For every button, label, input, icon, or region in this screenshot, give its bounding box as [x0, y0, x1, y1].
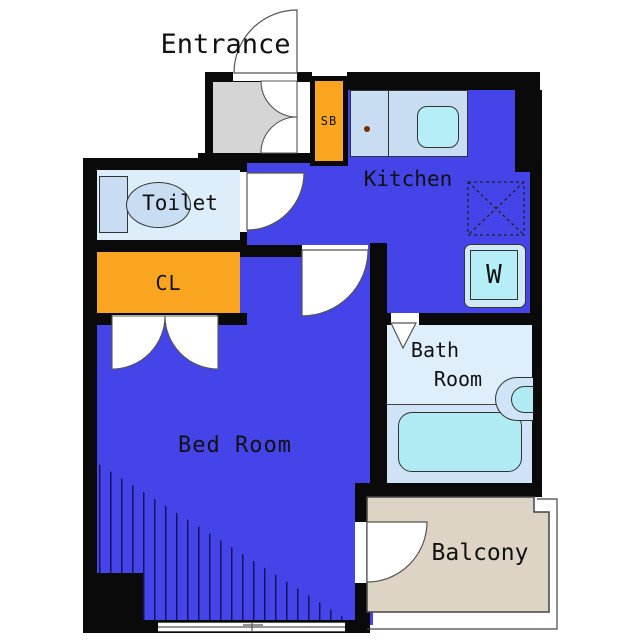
bathroom-wall-right: [532, 313, 542, 497]
bathroom-wall-bottom: [355, 483, 542, 497]
balcony-label: Balcony: [420, 541, 540, 566]
entrance-floor: [212, 82, 310, 153]
toilet-wall-top: [83, 158, 247, 170]
washing-machine-pan: W: [464, 244, 526, 308]
bathroom-label-line2: Room: [428, 368, 488, 390]
outer-wall-left: [83, 158, 97, 633]
shoebox-door-track: [297, 82, 310, 153]
balcony-door-sill: [355, 522, 370, 583]
kitchen-wall-top: [347, 72, 540, 90]
bathtub: [398, 412, 522, 472]
bedroom-bath-wall: [370, 243, 387, 497]
washbasin-bowl: [511, 386, 533, 413]
toilet-label: Toilet: [130, 192, 230, 215]
bedroom-window: [158, 622, 345, 632]
bathroom-door-sill: [391, 313, 419, 325]
shoe-box-label: SB: [315, 81, 343, 161]
entrance-wall-left: [205, 72, 213, 160]
hall-bedroom-wall: [240, 245, 302, 257]
outer-wall-right-mid: [530, 90, 542, 315]
toilet-door-sill: [240, 172, 247, 232]
counter-divider: [388, 91, 389, 156]
entrance-label: Entrance: [148, 30, 303, 60]
closet-door-sill: [112, 315, 217, 323]
entrance-door-sill: [233, 72, 297, 81]
toilet-closet-divider-wall: [83, 240, 247, 252]
balcony-door-arc: [367, 522, 427, 582]
toilet-tank: [99, 176, 128, 233]
bathroom-label-line1: Bath: [405, 339, 465, 361]
stove-burner-icon: [364, 126, 370, 132]
bedroom-door-sill: [302, 245, 368, 255]
shoe-box: SB: [310, 76, 348, 166]
kitchen-sink: [417, 106, 459, 148]
kitchen-label: Kitchen: [352, 168, 464, 191]
bedroom-label: Bed Room: [140, 434, 330, 458]
closet: CL: [97, 252, 240, 313]
washing-machine-label: W: [470, 250, 518, 300]
floor-plan: SB W CL: [0, 0, 640, 640]
